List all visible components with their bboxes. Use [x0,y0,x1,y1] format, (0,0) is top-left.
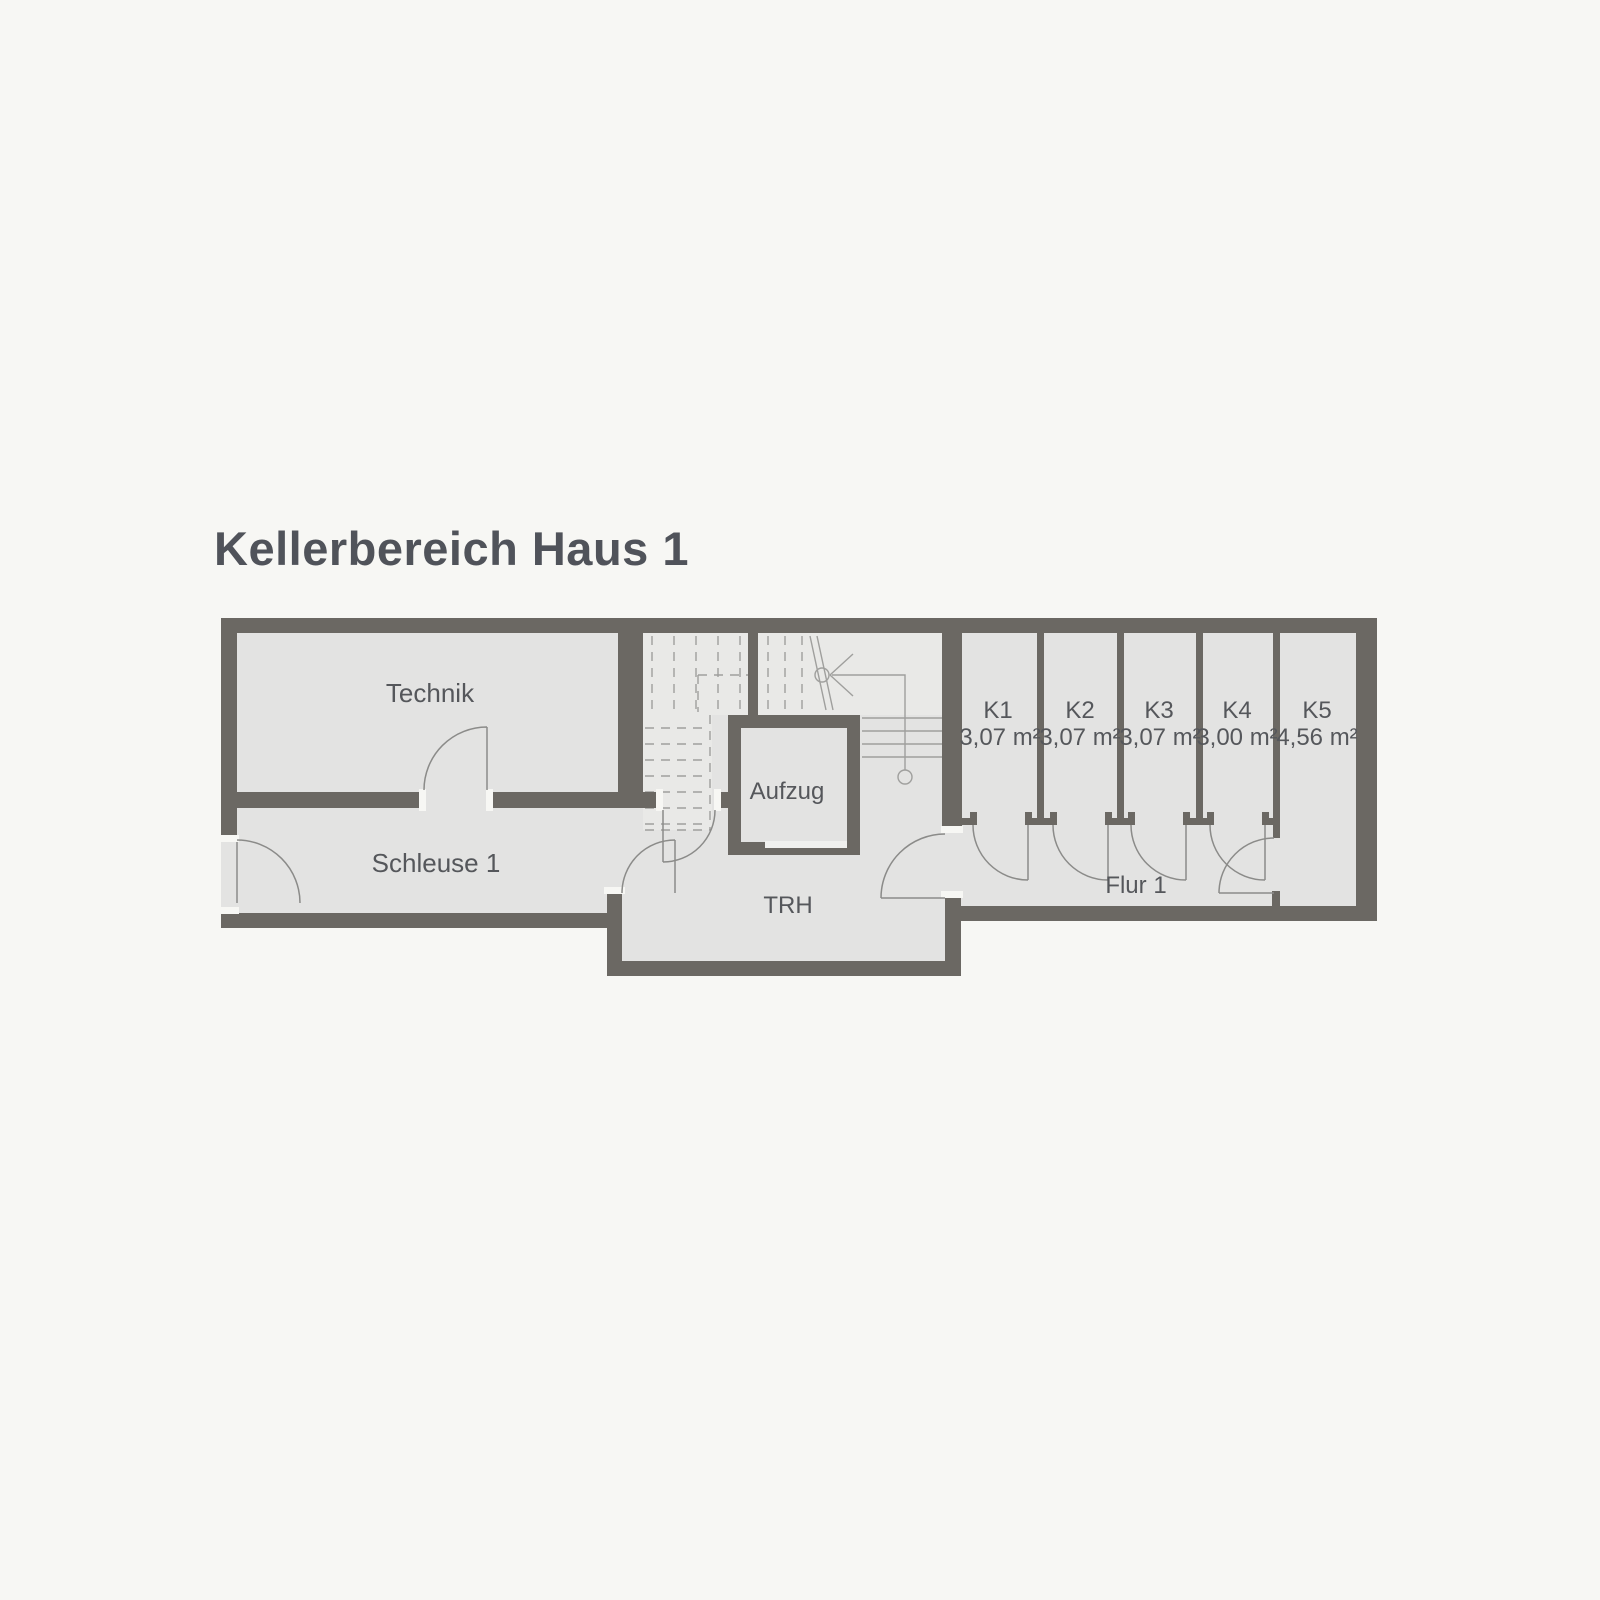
room-area-k4: 3,00 m² [1196,724,1277,751]
wall-stair-middle [748,633,758,717]
room-label-k2: K2 [1065,697,1094,724]
room-label-k1: K1 [983,697,1012,724]
room-label-k3: K3 [1144,697,1173,724]
room-area-k5: 4,56 m² [1276,724,1357,751]
floor-left [221,618,622,928]
room-area-k2: 3,07 m² [1039,724,1120,751]
wall-bottom-left [221,913,622,928]
wall-technik-right [618,633,643,792]
room-label-schleuse: Schleuse 1 [372,848,501,878]
elevator-door [765,841,847,848]
wall-technik-bottom-a [221,792,419,808]
wall-trh-right [945,898,961,976]
wall-bottom-right [945,906,1377,921]
room-area-k1: 3,07 m² [959,724,1040,751]
room-label-aufzug: Aufzug [750,778,825,805]
floorplan-canvas: Technik Schleuse 1 Aufzug TRH Flur 1 K1 … [0,0,1600,1600]
wall-top [221,618,1377,633]
room-label-trh: TRH [763,892,812,919]
room-label-k5: K5 [1302,697,1331,724]
room-label-k4: K4 [1222,697,1251,724]
wall-vestibule-a [643,792,656,808]
floor-stair-vestibule [643,715,712,830]
wall-right [1356,618,1377,921]
floor-stair-upper [643,633,942,715]
room-area-k3: 3,07 m² [1119,724,1200,751]
room-label-technik: Technik [386,678,475,708]
wall-technik-bottom-b [493,792,643,808]
wall-trh-bottom [607,961,961,976]
room-label-flur: Flur 1 [1105,872,1166,899]
